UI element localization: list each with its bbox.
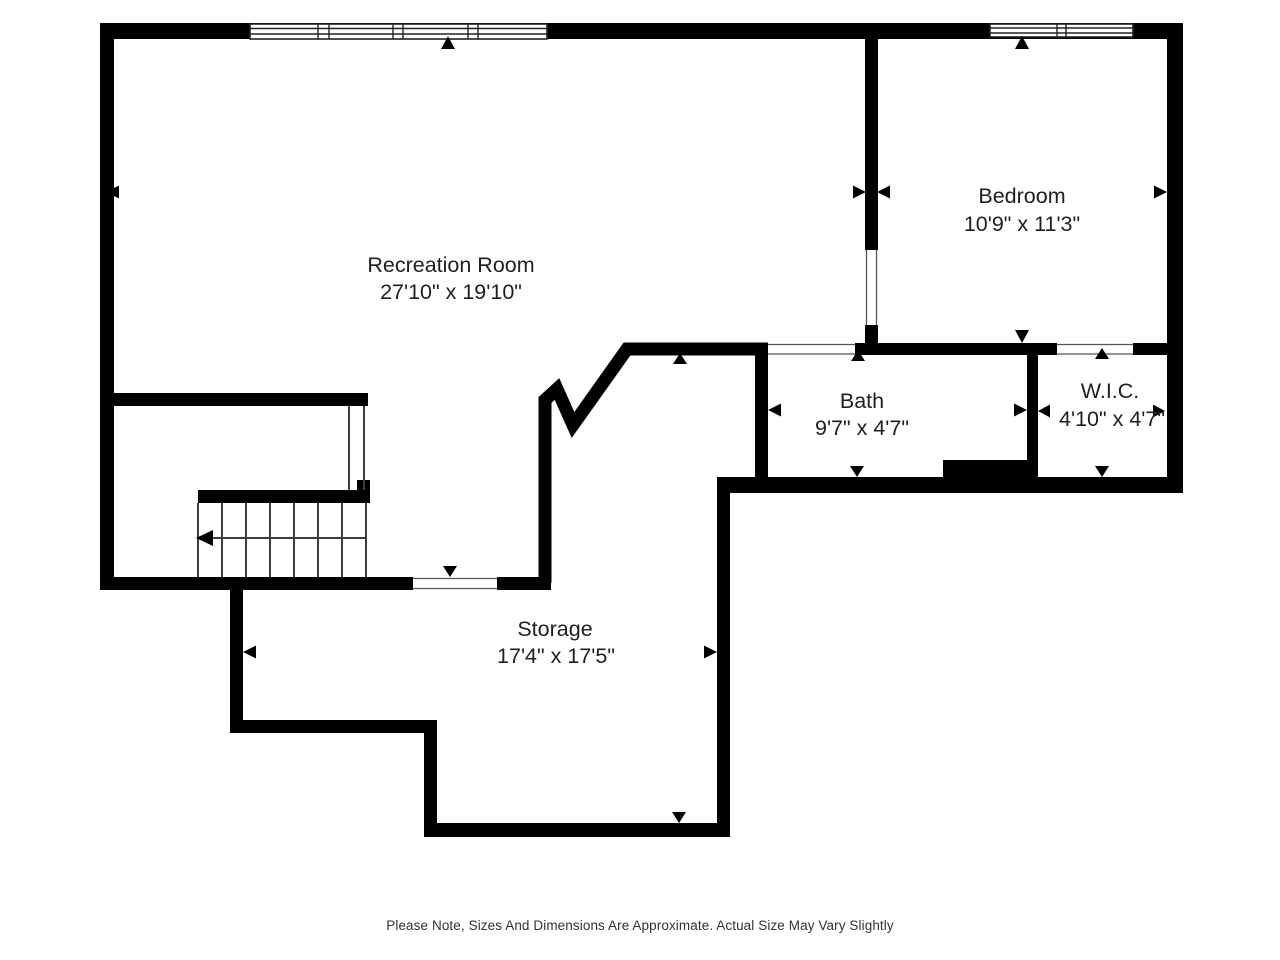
stair-closet-top-wall bbox=[100, 393, 368, 406]
storage-right-wall bbox=[717, 477, 730, 837]
dim-arrow-bath-right-icon bbox=[1014, 404, 1027, 417]
outer-wall-right bbox=[1167, 23, 1183, 493]
storage-label: Storage bbox=[517, 617, 592, 641]
window-frame bbox=[990, 24, 1133, 37]
window-frame bbox=[250, 24, 547, 39]
outer-wall-bottom-right bbox=[717, 477, 1183, 493]
wic-dimensions: 4'10" x 4'7" bbox=[1059, 407, 1165, 431]
zigzag-wall bbox=[545, 349, 768, 583]
bath-fixture-block bbox=[943, 460, 1038, 478]
footer-disclaimer: Please Note, Sizes And Dimensions Are Ap… bbox=[0, 918, 1280, 933]
storage-jog-wall-vertical bbox=[424, 720, 437, 837]
wic-top-wall-right bbox=[1133, 343, 1183, 355]
dim-arrow-wic-left-icon bbox=[1038, 405, 1050, 418]
dim-arrow-bedroom-right-icon bbox=[1154, 186, 1167, 199]
bath-label: Bath bbox=[840, 389, 884, 413]
bath-wic-top-wall bbox=[855, 343, 1057, 355]
bath-dimensions: 9'7" x 4'7" bbox=[815, 416, 909, 440]
dim-arrow-bedroom-left-icon bbox=[877, 186, 890, 199]
dim-arrow-rec-right-icon bbox=[853, 186, 866, 199]
recreation-room-label: Recreation Room bbox=[367, 253, 534, 277]
storage-door-marker-icon bbox=[443, 566, 457, 577]
wic-label: W.I.C. bbox=[1081, 379, 1140, 403]
floor-plan-page: Recreation Room 27'10" x 19'10" Bedroom … bbox=[0, 0, 1280, 960]
dim-arrow-bath-bottom-icon bbox=[850, 466, 864, 477]
left-section-bottom-wall-a bbox=[100, 577, 413, 590]
storage-jog-wall-horizontal bbox=[230, 720, 437, 733]
bedroom-label: Bedroom bbox=[978, 184, 1065, 208]
bedroom-window bbox=[990, 24, 1133, 37]
recreation-room-window bbox=[250, 24, 547, 39]
dim-arrow-bath-left-icon bbox=[768, 404, 781, 417]
recreation-room-dimensions: 27'10" x 19'10" bbox=[380, 280, 522, 304]
dimension-markers bbox=[106, 36, 1167, 823]
stair-header-wall bbox=[198, 490, 370, 503]
storage-dimensions: 17'4" x 17'5" bbox=[497, 644, 615, 668]
dim-arrow-bedroom-bottom-icon bbox=[1015, 330, 1029, 343]
dim-arrow-storage-right-icon bbox=[704, 646, 717, 659]
dim-arrow-storage-left-icon bbox=[243, 646, 256, 659]
storage-bottom-wall bbox=[424, 823, 730, 837]
staircase bbox=[196, 503, 366, 577]
storage-left-wall bbox=[230, 588, 243, 732]
bath-wic-divider-wall bbox=[1027, 353, 1038, 477]
dim-arrow-wic-bottom-icon bbox=[1095, 466, 1109, 477]
dim-arrow-storage-bottom-icon bbox=[672, 812, 686, 823]
walls bbox=[100, 23, 1183, 837]
bedroom-left-wall-upper bbox=[865, 35, 878, 250]
bath-left-wall bbox=[755, 343, 768, 477]
bedroom-dimensions: 10'9" x 11'3" bbox=[964, 212, 1080, 236]
outer-wall-left bbox=[100, 23, 114, 590]
floor-plan-drawing: Recreation Room 27'10" x 19'10" Bedroom … bbox=[0, 0, 1280, 960]
